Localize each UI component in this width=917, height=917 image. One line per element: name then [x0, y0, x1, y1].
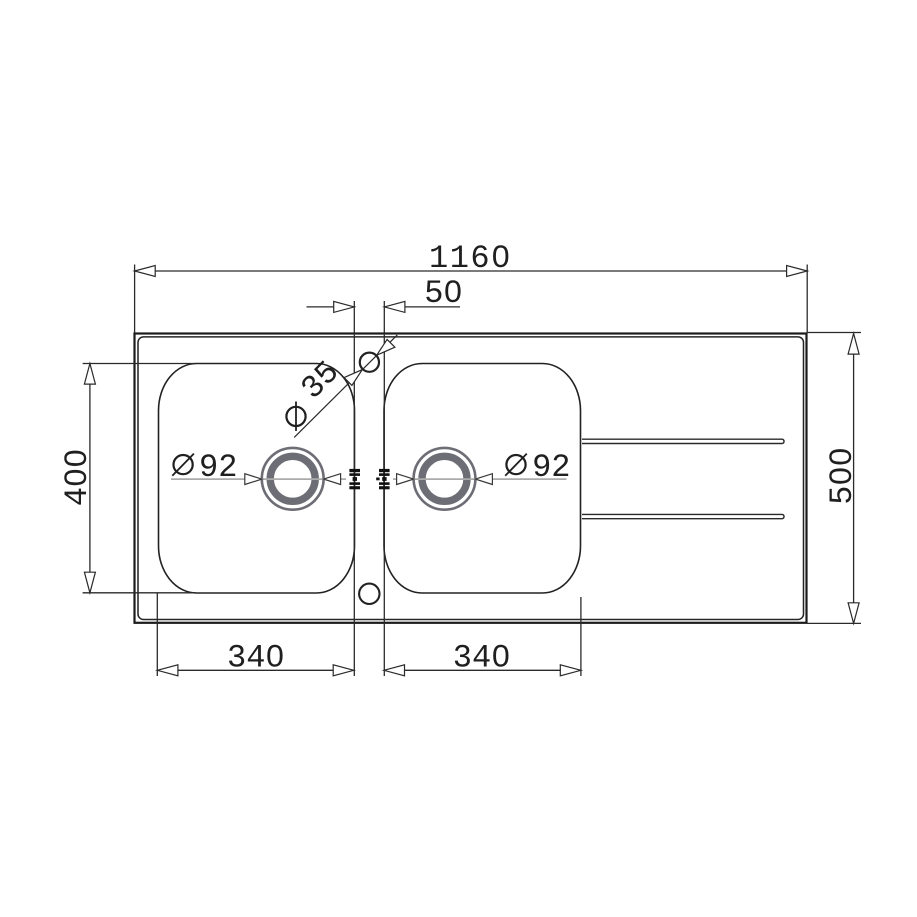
svg-text:92: 92	[532, 449, 570, 486]
svg-text:92: 92	[199, 449, 237, 486]
svg-text:35: 35	[294, 354, 347, 407]
